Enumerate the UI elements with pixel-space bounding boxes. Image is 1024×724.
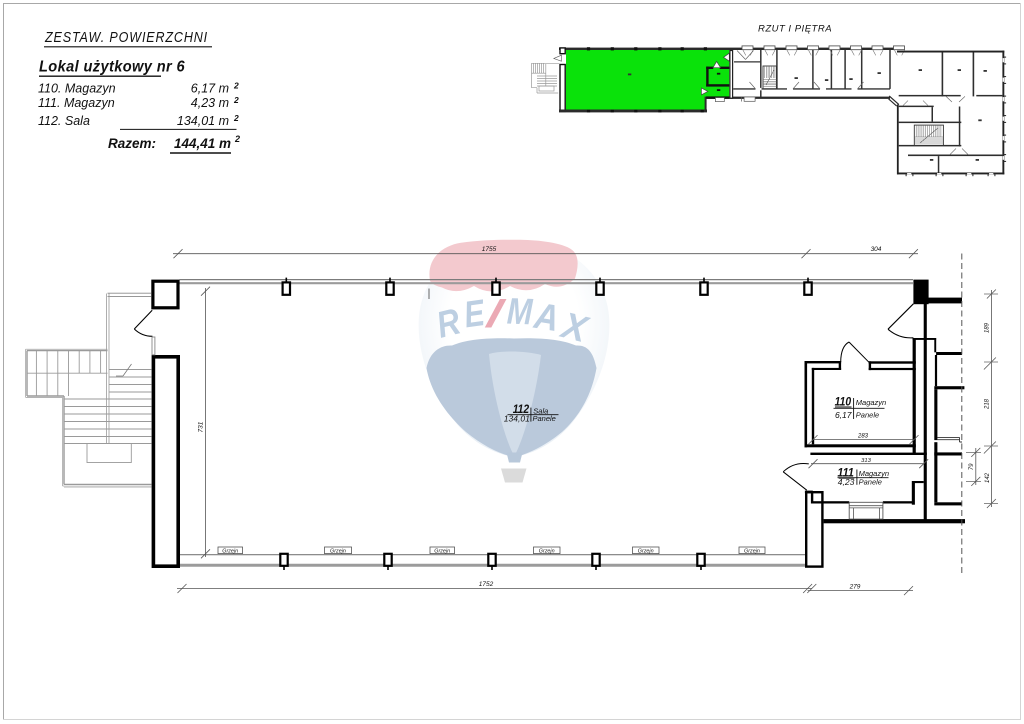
svg-text:1752: 1752 [479, 581, 494, 588]
svg-text:144,41 m: 144,41 m [174, 136, 231, 151]
svg-text:6,17 m: 6,17 m [191, 82, 229, 96]
svg-text:Grzejn: Grzejn [744, 548, 760, 554]
svg-text:142: 142 [985, 472, 991, 483]
svg-text:4,23: 4,23 [838, 477, 855, 487]
svg-text:ZESTAW. POWIERZCHNI: ZESTAW. POWIERZCHNI [44, 30, 208, 46]
svg-text:731: 731 [198, 421, 205, 432]
svg-text:Razem:: Razem: [108, 136, 156, 151]
svg-text:134,01 m: 134,01 m [177, 114, 229, 128]
svg-text:Panele: Panele [856, 410, 879, 419]
svg-text:111. Magazyn: 111. Magazyn [38, 96, 115, 110]
svg-text:313: 313 [861, 458, 871, 464]
svg-text:4,23 m: 4,23 m [191, 96, 229, 110]
svg-text:M: M [506, 291, 534, 333]
svg-text:Grzejn: Grzejn [330, 548, 346, 554]
svg-text:2: 2 [234, 134, 240, 144]
svg-text:189: 189 [985, 322, 991, 333]
svg-text:Panele: Panele [859, 477, 882, 486]
svg-text:304: 304 [871, 246, 882, 253]
svg-text:283: 283 [857, 434, 869, 440]
svg-text:Lokal użytkowy nr 6: Lokal użytkowy nr 6 [39, 59, 185, 76]
svg-text:112. Sala: 112. Sala [38, 114, 90, 128]
svg-text:6,17: 6,17 [835, 410, 852, 420]
svg-text:Grzejn: Grzejn [638, 548, 654, 554]
svg-text:Grzejn: Grzejn [539, 548, 555, 554]
svg-text:279: 279 [849, 583, 861, 590]
svg-text:218: 218 [985, 398, 991, 410]
svg-text:2: 2 [233, 81, 239, 91]
svg-text:2: 2 [233, 113, 239, 123]
svg-text:134,01: 134,01 [504, 414, 530, 424]
svg-text:RZUT I PIĘTRA: RZUT I PIĘTRA [758, 24, 832, 35]
svg-text:Panele: Panele [533, 414, 556, 423]
svg-text:2: 2 [233, 95, 239, 105]
svg-text:1755: 1755 [482, 246, 497, 253]
svg-text:79: 79 [969, 463, 975, 470]
svg-text:Grzejn: Grzejn [222, 548, 238, 554]
svg-text:Grzejn: Grzejn [434, 548, 450, 554]
svg-text:110. Magazyn: 110. Magazyn [38, 82, 116, 96]
svg-text:110: 110 [835, 394, 852, 408]
svg-text:Magazyn: Magazyn [856, 398, 886, 407]
